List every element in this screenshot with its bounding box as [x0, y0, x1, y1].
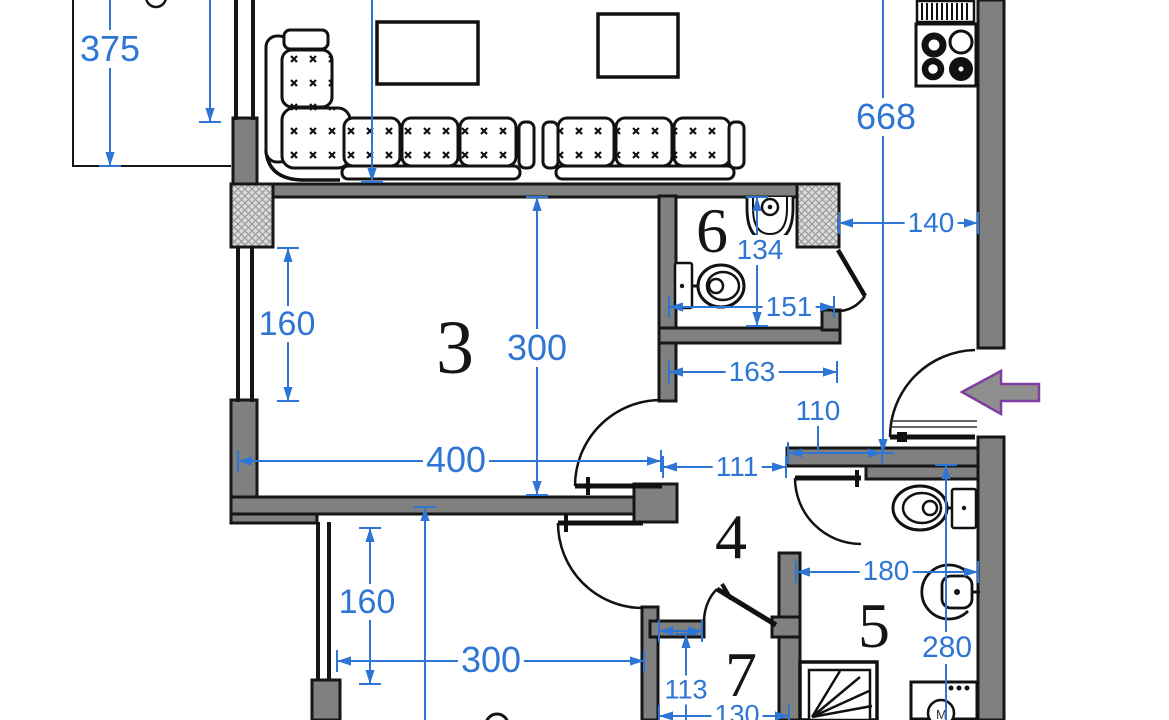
coffee-tables: [377, 14, 678, 84]
corner-sofa: [266, 30, 534, 180]
dimension-label: 113: [661, 676, 710, 705]
shower-icon: [800, 662, 877, 720]
dimension-layer: [0, 0, 1169, 720]
dimension-label: 110: [793, 396, 844, 426]
toilet-icon: [675, 263, 744, 308]
floor-plan: M 34567 37566814013430016015116311040011…: [0, 0, 1169, 720]
dimension-label: 134: [734, 235, 787, 265]
room-5-label: 5: [858, 594, 890, 658]
dimension-label: 280: [919, 632, 975, 664]
dimension: [659, 620, 702, 642]
dimension-label: 160: [336, 584, 399, 620]
dimension-label: 160: [256, 306, 319, 342]
room-3-label: 3: [436, 310, 474, 386]
dimension-label: 400: [423, 441, 489, 479]
dimension-label: 163: [726, 357, 779, 387]
stove-icon: [916, 24, 976, 86]
dimension: [872, 0, 894, 453]
dimension: [414, 507, 436, 720]
dimension: [199, 0, 221, 122]
dimension-label: 300: [504, 329, 570, 367]
toilet-icon-2: [893, 486, 976, 530]
sofa: [543, 118, 744, 179]
dimension-label: 151: [763, 292, 816, 322]
room-6-label: 6: [696, 199, 728, 263]
room-4-label: 4: [715, 505, 747, 569]
vent-grille-icon: [917, 1, 974, 22]
dimension-label: 111: [713, 452, 762, 482]
dimension: [935, 465, 957, 720]
dimension-label: 130: [711, 701, 762, 720]
balcony-outline: [73, 0, 231, 166]
dimension-label: 140: [905, 208, 958, 238]
floor-plan-drawing: M: [0, 0, 1169, 720]
washing-machine-label: M: [936, 707, 947, 720]
dimension: [361, 0, 383, 182]
dimension: [788, 424, 882, 464]
dimension-label: 180: [860, 556, 913, 586]
dimension-label: 300: [458, 641, 524, 679]
dimension-label: 668: [853, 98, 919, 136]
washing-machine-icon: M: [911, 682, 977, 720]
room-7-label: 7: [725, 643, 757, 707]
dimension: [99, 0, 121, 166]
entrance-arrow-icon: [962, 371, 1039, 414]
dimension-label: 375: [77, 30, 143, 68]
bidet-icon: [922, 565, 980, 619]
